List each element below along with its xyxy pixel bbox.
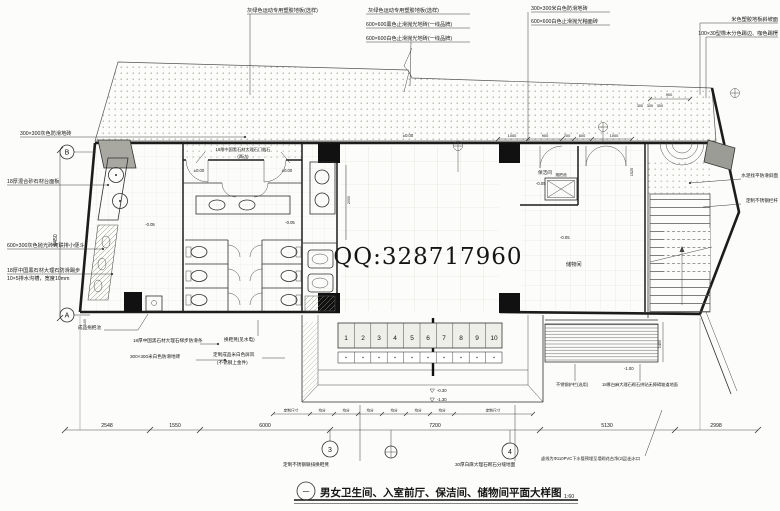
dim-label: 1000 xyxy=(508,133,517,138)
locker-row: 1 2 3 4 5 6 7 8 9 10 xyxy=(338,323,502,363)
annotation: 300×300灰色防滑地砖 xyxy=(20,129,71,137)
annotation: 定制成品米白色屏风 xyxy=(213,351,255,358)
dim-label: 均分 xyxy=(414,408,422,413)
column xyxy=(499,293,520,313)
locker-number: 2 xyxy=(361,335,365,342)
exterior-walkway xyxy=(95,48,716,141)
elevation-mark: -0.05 xyxy=(285,220,295,225)
dim-label: 定制尺寸 xyxy=(486,408,501,413)
dim-label: 300 xyxy=(637,104,643,108)
elevation-mark: -0.05 xyxy=(145,222,155,227)
annotation: 灰绿色运动专用塑胶地板(选样) xyxy=(247,6,318,14)
annotation: 换鞋凳(见水电) xyxy=(224,336,255,343)
annotation: 18厚白麻大理石砌石拼贴无障碍坡道地面 xyxy=(602,381,678,388)
locker-number: 10 xyxy=(490,335,498,342)
column xyxy=(124,292,142,312)
elevation-mark: -0.30 xyxy=(437,388,447,393)
dim-label: 200 xyxy=(564,133,571,138)
elevation-mark: -0.05 xyxy=(536,181,546,186)
dim-label: 300 xyxy=(647,104,653,108)
annotation: (不锈钢上金件) xyxy=(217,359,248,366)
qq-watermark: QQ:328717960 xyxy=(333,244,522,270)
locker-number: 8 xyxy=(459,335,463,342)
dim-label: 1550 xyxy=(169,423,181,429)
annotation: 虚线为Φ110PVC下水管预埋至墙砌花台净(2层)出水口 xyxy=(541,455,640,462)
floor-finishes xyxy=(82,143,712,311)
stair-landing xyxy=(648,158,712,194)
drawing-sheet: 1 2 3 4 5 6 7 8 9 10 xyxy=(0,0,780,511)
dim-label: 600 xyxy=(579,133,586,138)
dim-label: 5130 xyxy=(601,423,613,429)
axis-label-4: 4 xyxy=(508,449,512,456)
dim-label: 2548 xyxy=(101,423,113,429)
detail-number: 一 xyxy=(303,489,310,496)
annotation: 600×300灰色抛光砖砌联排小便斗 xyxy=(7,241,84,249)
column xyxy=(499,143,520,163)
foyer-floor xyxy=(340,146,499,311)
dim-label: 定制尺寸 xyxy=(284,408,299,413)
locker-number: 5 xyxy=(410,335,414,342)
elevation-mark: -0.05 xyxy=(560,235,570,240)
column xyxy=(318,143,340,163)
dim-label: 均分 xyxy=(342,408,350,413)
drawing-title: 男女卫生间、入室前厅、保洁间、储物间平面大样图 xyxy=(320,486,562,499)
entrance-platform: 1 2 3 4 5 6 7 8 9 10 xyxy=(302,315,658,402)
locker-number: 3 xyxy=(377,335,381,342)
dim-label: 7200 xyxy=(429,423,441,429)
dim-label: 2998 xyxy=(710,423,722,429)
axis-label-b: B xyxy=(65,150,70,157)
annotation: 定制不锈钢栏杆 xyxy=(746,197,779,204)
room-label-storage: 储物间 xyxy=(566,260,582,268)
annotation: 不锈钢护栏(选用) xyxy=(556,381,589,388)
annotation: 定制不锈钢联排换鞋凳 xyxy=(283,461,329,468)
axis-flower-icon xyxy=(385,446,397,458)
annotation: 18厚中国黑石材大理石门槛石 xyxy=(216,146,271,153)
elevation-mark: ±0.00 xyxy=(282,168,293,173)
drawing-scale: 1:60 xyxy=(564,494,574,500)
dim-label: 1000 xyxy=(610,133,619,138)
annotation: (两边) xyxy=(237,153,249,160)
corner-shaft xyxy=(98,140,136,168)
elevation-mark: -1.00 xyxy=(624,366,634,371)
annotation: 灰绿色运动专用塑胶地板(选样) xyxy=(368,6,439,14)
annotation: 600×600白色止滑抛光釉面砖 xyxy=(531,17,598,25)
dim-label: 均分 xyxy=(438,408,446,413)
annotation: 300×300米白色防滑地砖 xyxy=(531,4,588,12)
dim-label: 900 xyxy=(542,133,549,138)
dim-label: 均分 xyxy=(390,408,398,413)
annotation: 600×600白色止滑抛光地砖(一线品牌) xyxy=(366,34,452,42)
annotation: 18厚混合砂石材台面板 xyxy=(7,177,60,185)
locker-number: 1 xyxy=(344,335,348,342)
dim-label: 1400 xyxy=(658,340,662,348)
dim-label: 2000 xyxy=(347,196,351,204)
room-label-mop: 拖把池 xyxy=(555,172,566,177)
dim-label: 300 xyxy=(657,104,663,108)
locker-number: 7 xyxy=(442,335,446,342)
locker-number: 4 xyxy=(393,335,397,342)
room-label-cleaning: 保洁间 xyxy=(538,169,552,176)
annotation: 18厚中国黑石材大理石防滑踢步 xyxy=(7,266,80,274)
annotation: 100×30型橡木分色踢边、咖色踢楞 xyxy=(698,29,778,37)
elevation-mark: ±0.00 xyxy=(194,168,205,173)
axis-flower-icon xyxy=(731,89,740,98)
axis-label-a: A xyxy=(65,313,70,320)
floor-plan-drawing: 1 2 3 4 5 6 7 8 9 10 xyxy=(0,0,780,511)
dim-label: 900 xyxy=(666,92,673,97)
railing xyxy=(700,314,731,394)
locker-number: 9 xyxy=(475,335,479,342)
accessible-ramp xyxy=(545,320,658,362)
locker-number: 6 xyxy=(426,335,430,342)
annotation: 300×300米白色防滑地砖 xyxy=(130,353,181,360)
dim-label: 1525 xyxy=(630,168,634,176)
dim-label: 均分 xyxy=(366,408,374,413)
annotation: 18厚中国黑石材大理石梯步防滑条 xyxy=(133,337,203,344)
elevation-mark: ±0.00 xyxy=(403,133,414,138)
annotation: 600×600黑色止滑抛光地砖(一线品牌) xyxy=(366,20,452,28)
dim-label: 6000 xyxy=(259,423,271,429)
title-block: 一 男女卫生间、入室前厅、保洁间、储物间平面大样图 1:60 xyxy=(294,482,578,504)
elevation-mark: -1.30 xyxy=(437,397,447,402)
axis-label-3: 3 xyxy=(328,447,332,454)
dim-label: 均分 xyxy=(318,408,326,413)
annotation: 10×5排水沟槽，宽度10mm xyxy=(7,274,69,282)
annotation: 成品拖把池 xyxy=(78,324,101,331)
annotation: 米色塑胶地板斜坡面 xyxy=(731,15,778,23)
annotation: 水泥找平防滑斜面 xyxy=(741,172,778,179)
annotation: 30厚白麻大理石砌石分缝地面 xyxy=(455,461,516,468)
